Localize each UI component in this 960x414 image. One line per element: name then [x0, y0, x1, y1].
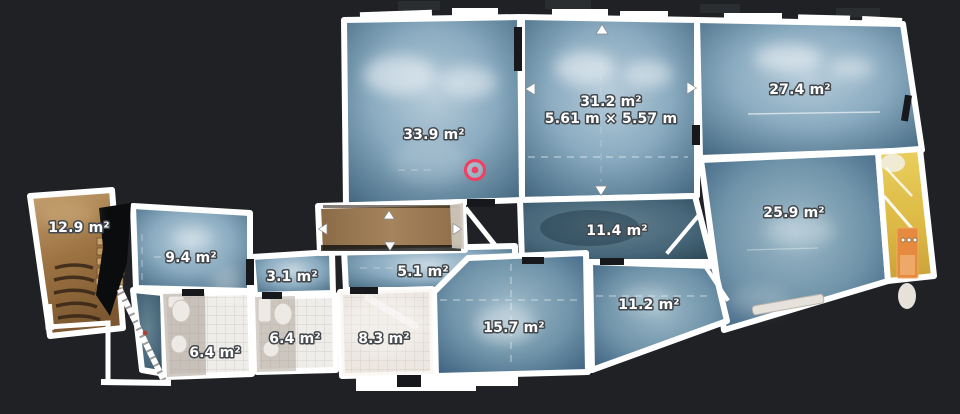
room-label: 15.7 m² — [483, 320, 545, 336]
room-label: 3.1 m² — [266, 269, 318, 285]
room-label: 6.4 m² — [189, 345, 241, 361]
room-label-selected: 31.2 m² — [580, 94, 642, 110]
scan-position-dot — [472, 167, 479, 174]
bottom-notch — [397, 375, 421, 387]
room-label: 8.3 m² — [358, 331, 410, 347]
scan-position-marker[interactable] — [466, 161, 485, 180]
sink-fixture — [258, 298, 271, 322]
balcony-edge-top — [323, 205, 457, 208]
room-label: 5.1 m² — [397, 264, 449, 280]
room-label: 11.4 m² — [586, 223, 648, 239]
room-label: 9.4 m² — [165, 250, 217, 266]
room-label: 25.9 m² — [763, 205, 825, 221]
bidet-fixture — [171, 335, 187, 353]
floorplan-canvas[interactable]: 12.9 m² 9.4 m² 3.1 m² 5.1 m² 6.4 m² 6.4 … — [0, 0, 960, 414]
room-label: 6.4 m² — [269, 331, 321, 347]
room-dimensions-label: 5.61 m × 5.57 m — [545, 111, 678, 127]
room-label: 33.9 m² — [403, 127, 465, 143]
bathroom-left[interactable] — [163, 292, 252, 377]
floorplan-svg: 12.9 m² 9.4 m² 3.1 m² 5.1 m² 6.4 m² 6.4 … — [0, 0, 960, 414]
room-label: 11.2 m² — [618, 297, 680, 313]
toilet-fixture — [274, 303, 292, 325]
room-label: 12.9 m² — [48, 220, 110, 236]
room-label: 27.4 m² — [769, 82, 831, 98]
toilet-fixture — [172, 300, 190, 322]
